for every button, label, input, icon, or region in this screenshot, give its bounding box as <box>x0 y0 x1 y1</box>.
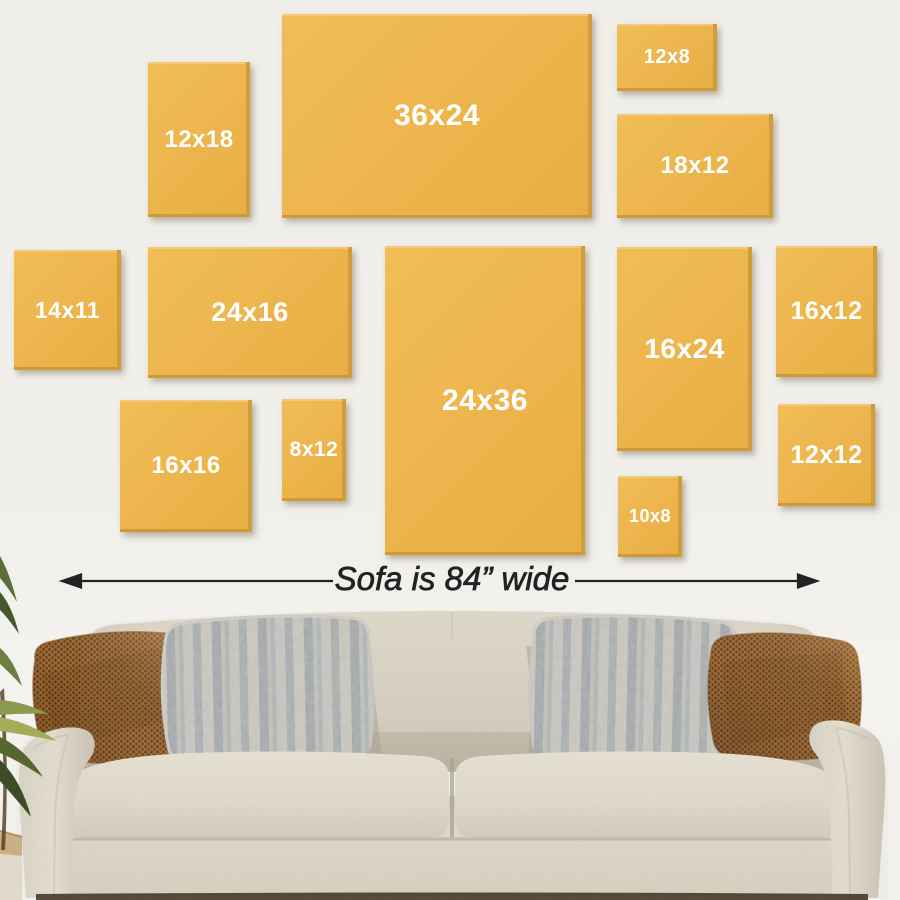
svg-text:Sofa is 84” wide: Sofa is 84” wide <box>335 560 570 597</box>
